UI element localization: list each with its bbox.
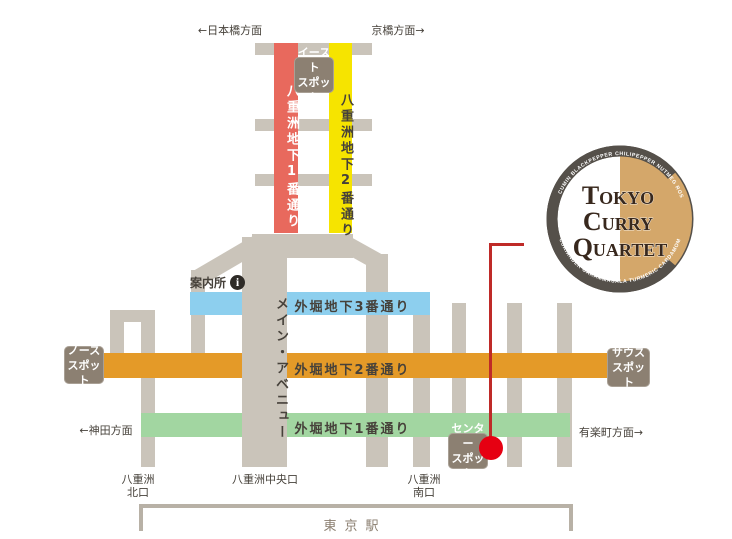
logo-text-line2: Curry <box>583 207 653 236</box>
station-outline <box>139 504 573 508</box>
street-sotobori3-label: 外堀地下3番通り <box>290 296 415 315</box>
direction-kyobashi: 京橋方面→ <box>368 24 428 37</box>
east-spot-badge: イースト スポット <box>294 57 334 93</box>
logo-text-line3: Quartet <box>573 233 668 262</box>
corridor-column <box>413 303 430 467</box>
north-spot-badge: ノース スポット <box>64 346 104 384</box>
information-desk-label: 案内所 <box>190 277 226 290</box>
station-name: 東京駅 <box>295 515 415 534</box>
street-sotobori2-label: 外堀地下2番通り <box>290 359 415 378</box>
exit-yaesu-south: 八重洲 南口 <box>399 473 449 499</box>
logo-text-line1: Tokyo <box>582 181 654 210</box>
station-outline <box>569 504 573 531</box>
shop-location-dot <box>479 436 503 460</box>
station-map: 八重洲地下1番通り 八重洲地下2番通り メイン・アベニュー 外堀地下3番通り 外… <box>0 0 732 539</box>
corridor-cross-bar <box>255 174 372 186</box>
street-yaesu1-label: 八重洲地下1番通り <box>274 84 298 230</box>
tokyo-curry-quartet-logo: GINGER CUMIN BLACKPEPPER CHILIPEPPER NUT… <box>535 134 705 304</box>
street-yaesu2-label: 八重洲地下2番通り <box>329 93 352 239</box>
corridor-cross-bar <box>255 119 372 131</box>
corridor-column <box>141 310 155 467</box>
corridor-column <box>507 303 522 467</box>
street-sotobori1-label: 外堀地下1番通り <box>290 418 415 437</box>
direction-kanda: ←神田方面 <box>75 424 137 437</box>
street-main-avenue-label: メイン・アベニュー <box>242 297 287 441</box>
direction-yurakucho: 有楽町方面→ <box>576 426 646 439</box>
route-pointer-line <box>489 243 492 448</box>
station-outline <box>139 504 143 531</box>
exit-yaesu-central: 八重洲中央口 <box>215 473 315 486</box>
corridor-column <box>110 310 124 354</box>
direction-nihonbashi: ←日本橋方面 <box>195 24 265 37</box>
route-pointer-line <box>490 243 524 246</box>
south-spot-badge: サウス スポット <box>607 348 650 387</box>
corridor-column <box>557 303 572 467</box>
exit-yaesu-north: 八重洲 北口 <box>113 473 163 499</box>
information-icon: i <box>230 275 245 290</box>
